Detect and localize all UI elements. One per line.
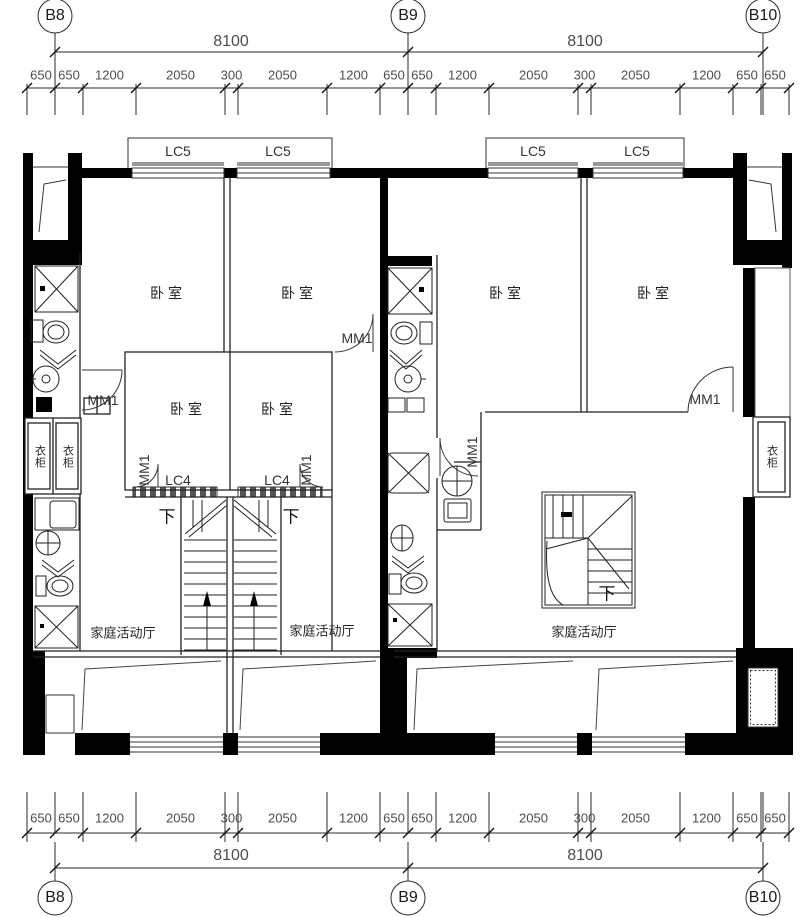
room-bedroom-1: 卧室	[150, 286, 186, 300]
segment-dim-top-7: 650	[383, 69, 405, 82]
overall-dim-left-top: 8100	[213, 34, 249, 50]
room-bedroom-5: 卧室	[170, 402, 206, 416]
wardrobe-label-2: 衣柜	[62, 445, 73, 469]
overall-dim-left-bottom: 8100	[213, 848, 249, 864]
grid-bubble-b8-top: B8	[45, 8, 65, 24]
stair-down-label-2: 下	[283, 509, 300, 526]
segment-dim-bottom-6: 1200	[339, 812, 368, 825]
segment-dim-bottom-10: 2050	[519, 812, 548, 825]
wardrobe-label-3: 衣柜	[766, 445, 777, 469]
door-tag-center: MM1	[341, 331, 372, 345]
door-tag-stair-right: MM1	[299, 454, 313, 485]
grid-bubble-b10-bottom: B10	[749, 890, 777, 906]
grid-bubble-b10-top: B10	[749, 8, 777, 24]
grid-bubble-b9-bottom: B9	[398, 890, 418, 906]
grid-bubble-b8-bottom: B8	[45, 890, 65, 906]
segment-dim-top-3: 2050	[166, 69, 195, 82]
segment-dim-top-11: 300	[574, 69, 596, 82]
segment-dim-top-1: 650	[58, 69, 80, 82]
segment-dim-top-2: 1200	[95, 69, 124, 82]
bay-window-tag-3: LC5	[520, 144, 546, 158]
segment-dim-top-8: 650	[411, 69, 433, 82]
floor-plan-canvas: B8B9B10B8B9B108100810081008100LC5LC5LC5L…	[0, 0, 800, 917]
room-bedroom-6: 卧室	[261, 402, 297, 416]
segment-dim-top-15: 650	[764, 69, 786, 82]
room-family-hall-1: 家庭活动厅	[90, 627, 155, 640]
room-bedroom-4: 卧室	[637, 286, 673, 300]
room-bedroom-3: 卧室	[489, 286, 525, 300]
door-tag-left: MM1	[87, 393, 118, 407]
segment-dim-bottom-14: 650	[736, 812, 758, 825]
segment-dim-bottom-11: 300	[574, 812, 596, 825]
segment-dim-top-5: 2050	[268, 69, 297, 82]
segment-dim-bottom-2: 1200	[95, 812, 124, 825]
segment-dim-bottom-4: 300	[221, 812, 243, 825]
stair-window-tag-1: LC4	[165, 473, 191, 487]
segment-dim-top-10: 2050	[519, 69, 548, 82]
label-layer: B8B9B10B8B9B108100810081008100LC5LC5LC5L…	[0, 0, 800, 917]
segment-dim-bottom-12: 2050	[621, 812, 650, 825]
overall-dim-right-top: 8100	[567, 34, 603, 50]
segment-dim-bottom-9: 1200	[448, 812, 477, 825]
room-family-hall-2: 家庭活动厅	[289, 625, 354, 638]
stair-window-tag-2: LC4	[264, 473, 290, 487]
segment-dim-top-6: 1200	[339, 69, 368, 82]
segment-dim-bottom-8: 650	[411, 812, 433, 825]
segment-dim-bottom-1: 650	[58, 812, 80, 825]
stair-down-label-3: 下	[599, 586, 616, 603]
bay-window-tag-1: LC5	[165, 144, 191, 158]
door-tag-right: MM1	[689, 392, 720, 406]
segment-dim-top-9: 1200	[448, 69, 477, 82]
segment-dim-bottom-13: 1200	[692, 812, 721, 825]
segment-dim-top-13: 1200	[692, 69, 721, 82]
segment-dim-bottom-7: 650	[383, 812, 405, 825]
segment-dim-bottom-3: 2050	[166, 812, 195, 825]
overall-dim-right-bottom: 8100	[567, 848, 603, 864]
segment-dim-bottom-0: 650	[30, 812, 52, 825]
segment-dim-bottom-15: 650	[764, 812, 786, 825]
segment-dim-top-12: 2050	[621, 69, 650, 82]
door-tag-stair-left: MM1	[137, 454, 151, 485]
wardrobe-label-1: 衣柜	[34, 445, 45, 469]
door-tag-hall: MM1	[465, 436, 479, 467]
grid-bubble-b9-top: B9	[398, 8, 418, 24]
segment-dim-top-4: 300	[221, 69, 243, 82]
segment-dim-top-0: 650	[30, 69, 52, 82]
room-family-hall-3: 家庭活动厅	[551, 626, 616, 639]
segment-dim-bottom-5: 2050	[268, 812, 297, 825]
segment-dim-top-14: 650	[736, 69, 758, 82]
bay-window-tag-4: LC5	[624, 144, 650, 158]
bay-window-tag-2: LC5	[265, 144, 291, 158]
room-bedroom-2: 卧室	[281, 286, 317, 300]
stair-down-label-1: 下	[159, 509, 176, 526]
